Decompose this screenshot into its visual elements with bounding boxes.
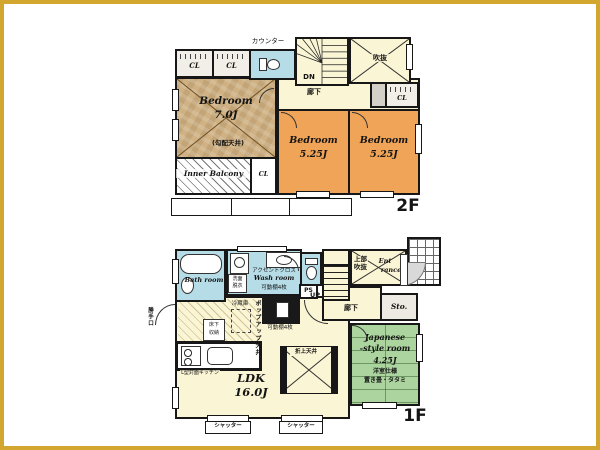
window-symbol — [415, 124, 422, 154]
coffered-ceiling-label: 折上天井 — [290, 349, 322, 356]
bedroom-a-name: Bedroom — [280, 135, 347, 146]
back-door-label: 勝手口 — [142, 302, 153, 332]
void-label: 吹抜 — [364, 54, 396, 62]
hallway-1f-label: 廊下 — [339, 304, 363, 312]
counter-label: カウンター — [236, 38, 300, 46]
wash-shelves-note: 可動棚4枚 — [250, 285, 298, 292]
stairs-1f — [322, 264, 350, 301]
pantry-shelves-label: 可動棚4枚 — [258, 325, 302, 332]
bathtub-icon — [180, 254, 222, 274]
back-door-swing-icon — [155, 304, 175, 325]
toilet-icon — [306, 266, 317, 280]
wash-room-label: Wash room — [250, 275, 298, 283]
underfloor-storage-label: 床下収納 — [207, 322, 221, 337]
window-symbol — [172, 89, 179, 111]
vanity-label: 洗面脱衣 — [231, 276, 244, 290]
sink-icon — [207, 347, 233, 365]
refrigerator-space — [231, 309, 251, 333]
floor1-label: 1F — [396, 406, 434, 426]
shutter-a-label: シャッター — [205, 423, 251, 430]
pantry — [262, 296, 300, 324]
window-symbol — [296, 191, 330, 198]
wall-stub — [281, 347, 287, 393]
storage-label: Sto. — [380, 302, 418, 311]
floor2-label: 2F — [389, 196, 427, 216]
stairs-down-label: DN — [299, 73, 319, 81]
closet-rod-icon — [390, 87, 414, 92]
closet-rod-icon — [180, 54, 209, 59]
window-symbol — [172, 259, 179, 284]
ldk-size: 16.0J — [227, 386, 275, 400]
shutter-b-label: シャッター — [279, 423, 323, 430]
toilet-icon — [259, 58, 267, 71]
kitchen-layout-label: L型対面キッチン — [180, 370, 220, 376]
wall-stub — [331, 347, 337, 393]
closet-hall-label: CL — [385, 95, 419, 103]
window-symbol — [416, 334, 423, 362]
entrance-label-line1: Ent — [375, 258, 395, 266]
inner-balcony-label: Inner Balcony — [176, 169, 251, 178]
closet-rod-icon — [217, 54, 246, 59]
bedroom-b-size: 5.25J — [351, 149, 417, 160]
window-symbol — [237, 246, 287, 252]
bath-room-label: Bath room — [182, 277, 226, 285]
stove-icon — [181, 346, 201, 366]
closet-a-label: CL — [175, 62, 214, 70]
stairs-up-label: UP — [307, 292, 323, 300]
bedroom-a-size: 5.25J — [280, 149, 347, 160]
floorplan-canvas: Bedroom 7.0J (勾配天井) CL CL カウンター DN 吹抜 廊下… — [0, 0, 600, 450]
bedroom-main-name: Bedroom — [185, 95, 267, 108]
closet-b-label: CL — [212, 62, 251, 70]
japanese-room-size: 4.25J — [353, 356, 417, 366]
japanese-room-spec-note: 洋室仕様 — [353, 368, 417, 375]
window-symbol — [362, 402, 397, 409]
ldk-name: LDK — [227, 372, 275, 386]
bedroom-b-name: Bedroom — [351, 135, 417, 146]
closet-balcony-label: CL — [250, 171, 277, 179]
roof-eave-outline — [171, 198, 352, 216]
hallway-2f-label: 廊下 — [302, 88, 326, 96]
pantry-fixture — [276, 302, 289, 318]
toilet-2f — [249, 49, 296, 80]
japanese-room-name-line2: -style room — [353, 344, 417, 354]
upper-void-label: 上部吹抜 — [353, 256, 368, 272]
window-symbol — [406, 44, 413, 70]
toilet-1f — [300, 252, 322, 286]
japanese-room-tatami-note: 置き畳・タタミ — [353, 377, 417, 384]
entry-step — [400, 254, 408, 286]
bedroom-main-ceiling-note: (勾配天井) — [193, 140, 263, 148]
washing-machine-drum-icon — [234, 257, 245, 268]
toilet-icon — [267, 59, 280, 70]
window-symbol — [172, 119, 179, 141]
bedroom-main-size: 7.0J — [185, 109, 267, 122]
window-symbol — [172, 387, 179, 409]
toilet-icon — [305, 258, 318, 265]
